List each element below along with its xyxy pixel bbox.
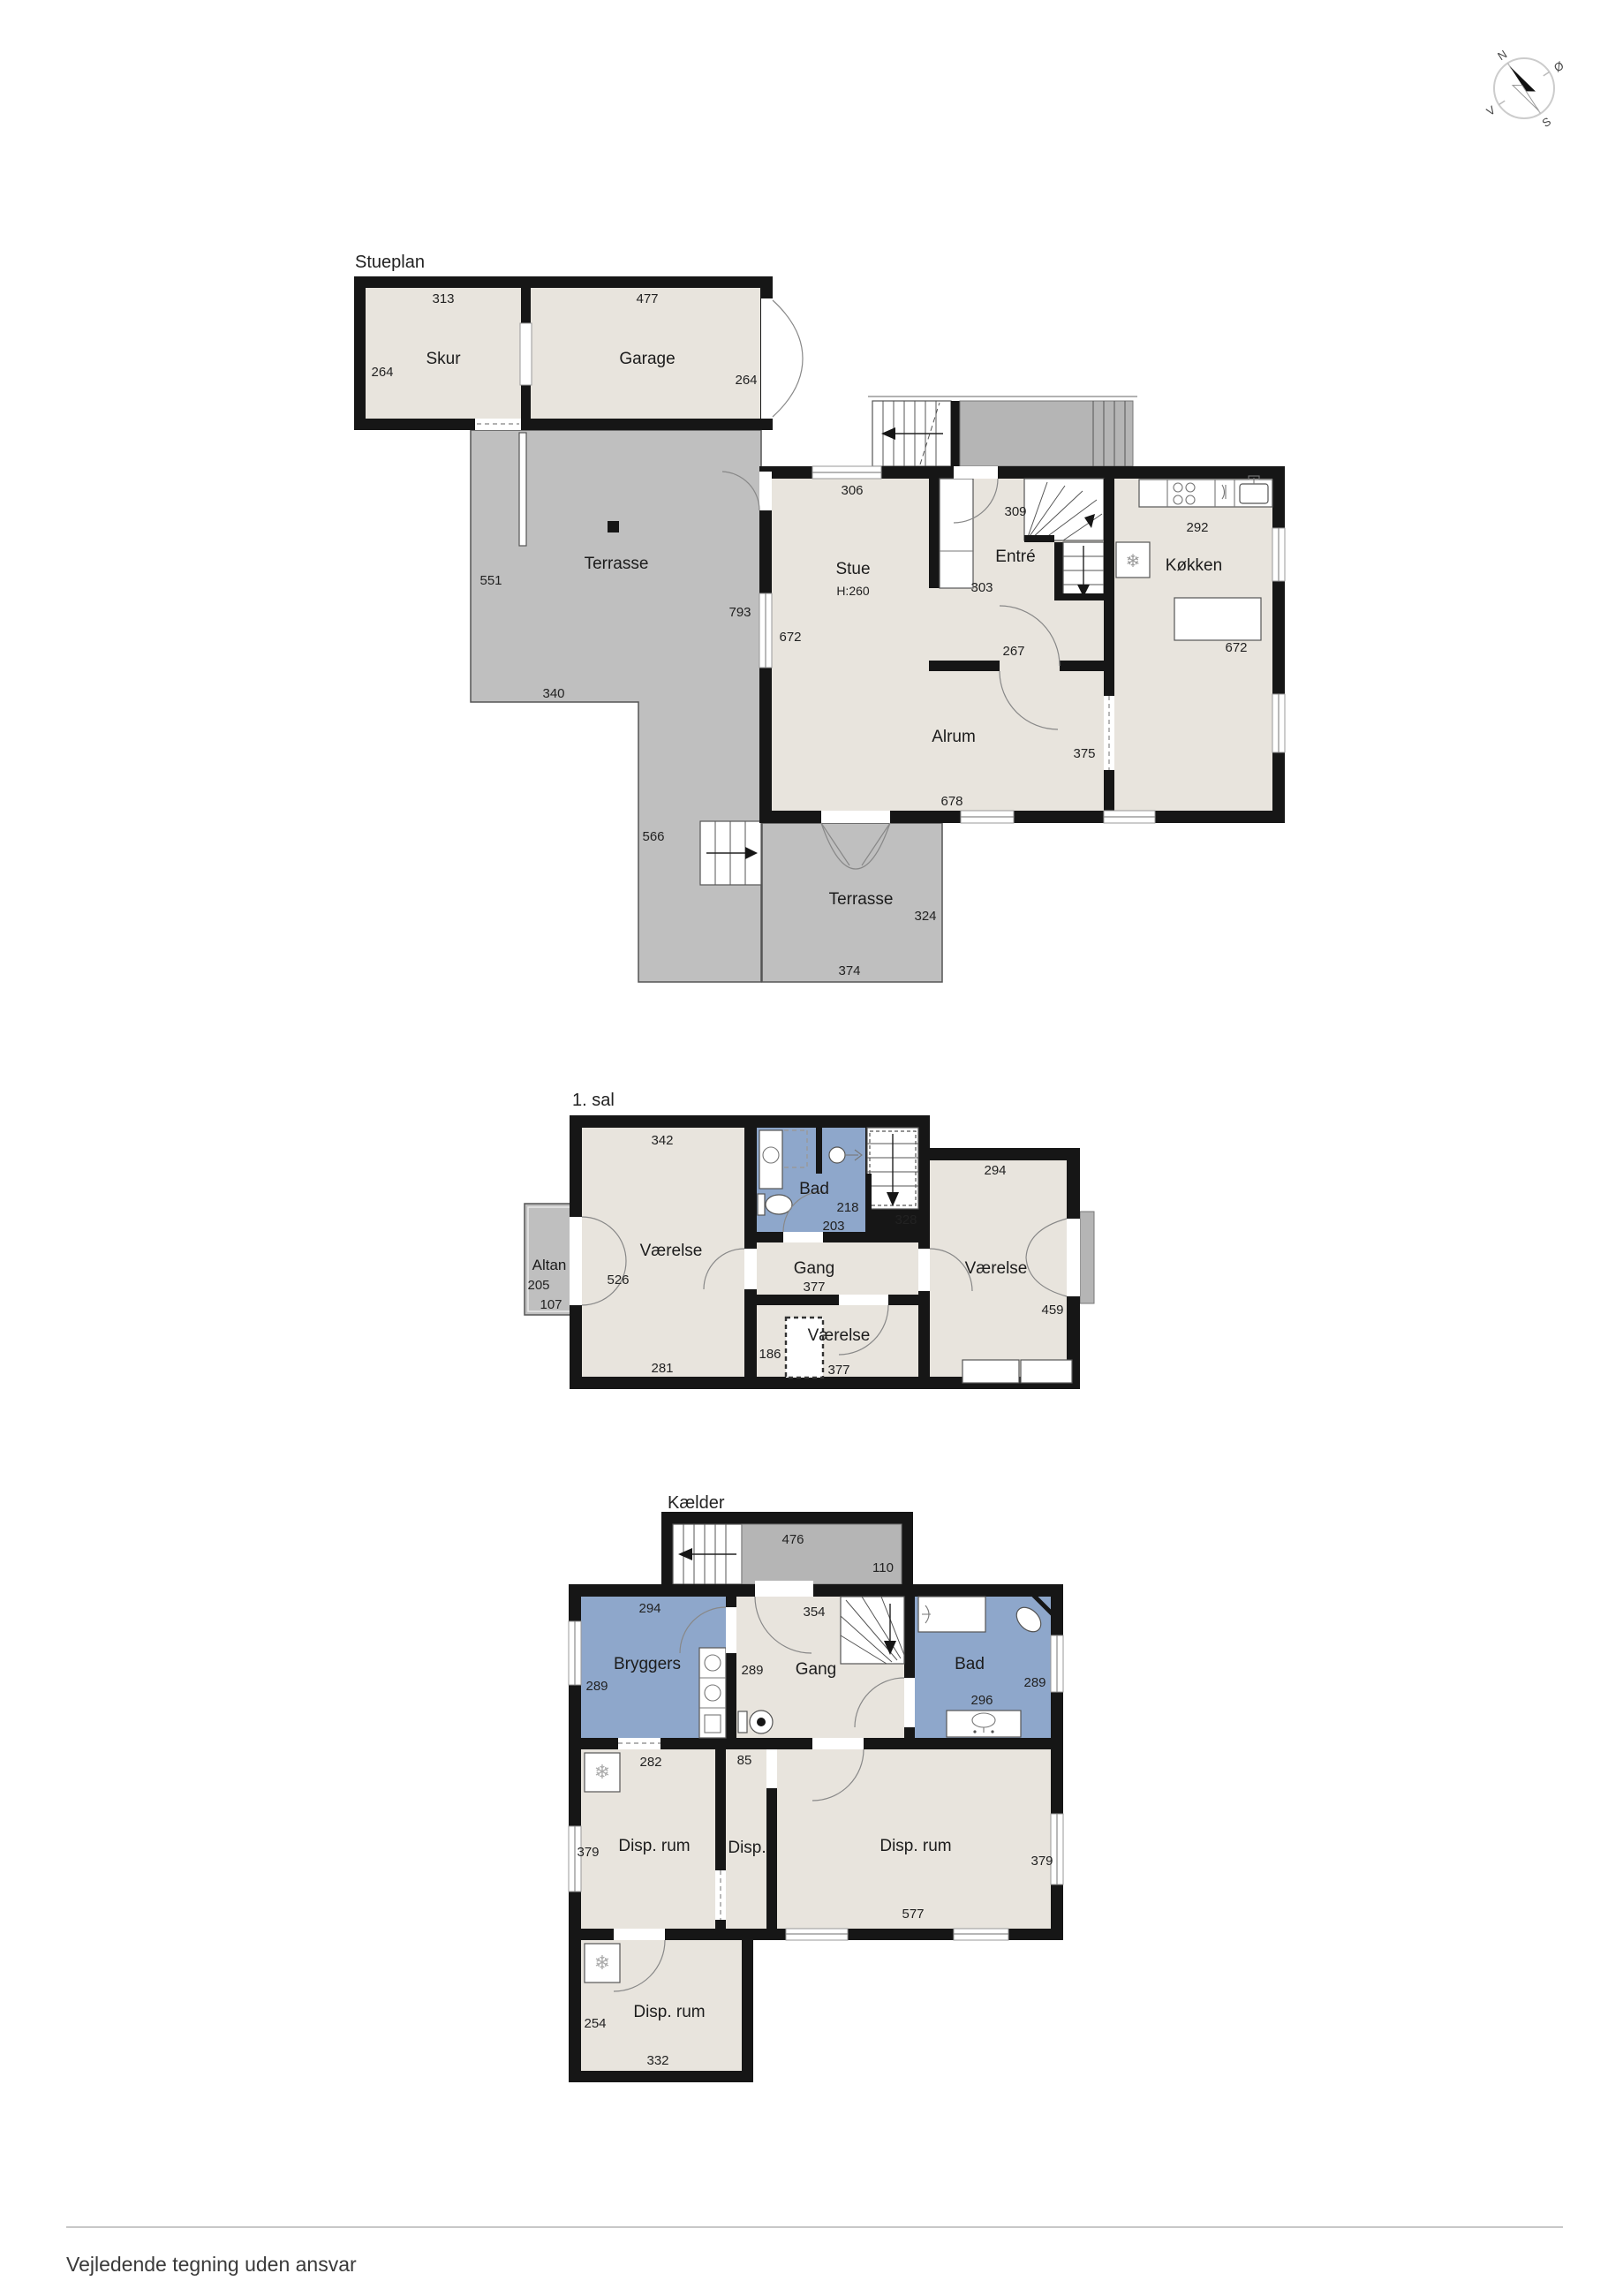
sink-icon [1240, 484, 1268, 503]
dim: 203 [822, 1219, 844, 1234]
sink-icon [829, 1147, 845, 1163]
room-label-bad-basement: Bad [955, 1655, 985, 1673]
dim: 85 [737, 1753, 752, 1768]
dim-terrasse-lower-depth: 324 [914, 909, 936, 924]
dim: 289 [1023, 1675, 1046, 1690]
freezer-icon: ❄ [585, 1753, 620, 1792]
wardrobe [1021, 1360, 1072, 1383]
compass-west-label: V [1484, 103, 1498, 118]
room-label-stue: Stue [835, 560, 870, 578]
gang-disp-door-opening [812, 1738, 864, 1749]
dim: 107 [540, 1297, 562, 1312]
room-label-skur: Skur [426, 350, 461, 368]
room-label-bryggers: Bryggers [614, 1655, 681, 1673]
compass-east-label: Ø [1551, 58, 1566, 74]
dim: 328 [895, 1212, 917, 1227]
kitchen-counter-icon [1139, 476, 1272, 507]
skur-door-opening [475, 419, 521, 430]
vaerelse-left-door-opening [744, 1249, 757, 1289]
fridge-icon: ❄ [1116, 542, 1150, 578]
freezer-icon: ❄ [585, 1944, 620, 1983]
dim-terrasse-left: 551 [479, 573, 502, 588]
compass-south-label: S [1540, 115, 1554, 130]
floor-plan-page: N Ø S V Stueplan 313 Skur [0, 0, 1623, 2296]
french-balcony [1080, 1212, 1094, 1303]
dim: 332 [646, 2053, 668, 2068]
first-floor-title: 1. sal [572, 1091, 615, 1110]
room-label-alrum: Alrum [932, 728, 976, 746]
dim: 379 [1030, 1854, 1053, 1869]
compass-icon: N Ø S V [1483, 47, 1566, 130]
room-label-gang: Gang [794, 1259, 834, 1278]
freezer-glyph: ❄ [1126, 552, 1141, 571]
disp-bottom-door-opening [614, 1929, 665, 1940]
dim: 110 [872, 1560, 894, 1575]
bad-door-opening [783, 1232, 823, 1242]
dim-alrum-width: 678 [940, 794, 962, 809]
dim-kokken-width: 292 [1186, 520, 1208, 535]
footer-disclaimer: Vejledende tegning uden ansvar [66, 2253, 357, 2276]
wall-stair-gang [865, 1174, 872, 1242]
vaerelse-right-door-opening [918, 1249, 930, 1291]
dim-terrasse-height: 793 [728, 605, 751, 620]
basement-entry-opening [755, 1581, 813, 1597]
terrace-stairs-icon [700, 821, 761, 885]
svg-text:❄: ❄ [594, 1952, 610, 1974]
dim: 377 [827, 1363, 849, 1378]
garage-door-opening [761, 298, 773, 419]
toilet-icon [738, 1711, 773, 1733]
dim-garage-width: 477 [636, 291, 658, 306]
dim: 289 [741, 1663, 763, 1678]
svg-text:❄: ❄ [594, 1761, 610, 1783]
dim: 294 [984, 1163, 1006, 1178]
terrace-door-opening [759, 472, 772, 510]
dim: 289 [585, 1679, 608, 1694]
dim: 577 [902, 1907, 924, 1922]
bryggers-appliances [699, 1648, 726, 1738]
basement-title: Kælder [668, 1493, 725, 1513]
floor-plan-drawing: N Ø S V Stueplan 313 Skur [0, 0, 1623, 2296]
dim: 526 [607, 1273, 629, 1288]
floor-plan-stueplan: Stueplan 313 Skur 264 477 Garage 26 [354, 253, 1285, 982]
room-label-kokken: Køkken [1166, 556, 1222, 575]
pedestal-sink-icon [947, 1711, 1021, 1737]
room-label-stue-height: H:260 [836, 584, 870, 598]
wardrobe-entre [940, 479, 973, 588]
entrance-stairs-icon [868, 397, 1137, 470]
dim-entre-opening: 267 [1002, 644, 1024, 659]
basement-stairs-icon [841, 1597, 904, 1664]
entrance-platform [960, 401, 1133, 466]
terrace-post [608, 521, 619, 532]
stueplan-title: Stueplan [355, 253, 425, 272]
dim-stue-depth: 672 [779, 630, 801, 645]
skur-garage-door-opening [520, 323, 532, 385]
dim: 282 [639, 1755, 661, 1770]
dim: 281 [651, 1361, 673, 1376]
disp-middle-opening [766, 1749, 777, 1788]
room-floor-gang [757, 1242, 918, 1295]
dim: 254 [584, 2016, 606, 2031]
room-label-vaerelse-right: Værelse [965, 1259, 1028, 1278]
stairwell-icon [867, 1128, 918, 1209]
room-label-gang-basement: Gang [796, 1660, 836, 1679]
bad-basement-door-opening [904, 1678, 915, 1727]
room-label-altan: Altan [532, 1257, 567, 1273]
garage-door-swing [773, 359, 803, 417]
dim-stue-width: 306 [841, 483, 863, 498]
dim-entre-depth: 303 [970, 580, 993, 595]
kitchen-island [1174, 598, 1261, 640]
room-label-disp-bottom: Disp. rum [633, 2003, 705, 2021]
dim-kokken-depth: 672 [1225, 640, 1247, 655]
room-label-terrasse-upper: Terrasse [585, 555, 649, 573]
footer: Vejledende tegning uden ansvar [66, 2227, 1563, 2276]
terrace-post-strip [519, 433, 526, 546]
dim: 342 [651, 1133, 673, 1148]
dim-garage-depth: 264 [735, 373, 757, 388]
dim: 186 [759, 1347, 781, 1362]
entrance-door-opening [954, 466, 998, 479]
room-label-terrasse-lower: Terrasse [829, 890, 894, 909]
bryggers-door-opening [726, 1607, 736, 1653]
room-label-bad: Bad [799, 1180, 829, 1198]
room-label-disp-right: Disp. rum [879, 1837, 951, 1855]
dim: 459 [1041, 1303, 1063, 1318]
room-label-vaerelse-middle: Værelse [808, 1326, 871, 1345]
wall-stue-entre [929, 479, 940, 588]
wall-entre-south [929, 661, 1000, 671]
altan-door-opening [570, 1217, 582, 1305]
floor-plan-first-floor: 1. sal [525, 1091, 1094, 1389]
wall-entre-kokken [1104, 479, 1114, 602]
room-label-garage: Garage [619, 350, 675, 368]
dim: 296 [970, 1693, 993, 1708]
dim-terrasse-bottom: 340 [542, 686, 564, 701]
floor-plan-basement: Kælder [569, 1493, 1063, 2082]
dim: 379 [577, 1845, 599, 1860]
dim-terrasse-side: 566 [642, 829, 664, 844]
dim-entre-width: 309 [1004, 504, 1026, 519]
dim: 354 [803, 1605, 825, 1620]
vaerelse-middle-door-opening [839, 1295, 888, 1305]
dim-alrum-opening: 375 [1073, 746, 1095, 761]
toilet-icon [758, 1194, 792, 1215]
garage-door-swing [773, 300, 803, 359]
compass-north-label: N [1495, 48, 1509, 64]
dim: 205 [527, 1278, 549, 1293]
wall-gang-middle [746, 1295, 918, 1305]
terrasse-upper-area [471, 430, 761, 982]
dim: 476 [781, 1532, 804, 1547]
room-label-disp-middle: Disp. [728, 1839, 766, 1857]
room-label-vaerelse-left: Værelse [640, 1242, 703, 1260]
dim-skur-depth: 264 [371, 365, 393, 380]
dim: 294 [638, 1601, 661, 1616]
dim-skur-width: 313 [432, 291, 454, 306]
dim-terrasse-lower-width: 374 [838, 963, 860, 978]
room-label-entre: Entré [995, 548, 1035, 566]
room-label-disp-left: Disp. rum [618, 1837, 690, 1855]
balcony-door-opening [1067, 1219, 1080, 1296]
vanity-icon [759, 1130, 782, 1189]
dim: 377 [803, 1280, 825, 1295]
terrace-double-door [821, 811, 890, 823]
wardrobe [962, 1360, 1019, 1383]
dim: 218 [836, 1200, 858, 1215]
